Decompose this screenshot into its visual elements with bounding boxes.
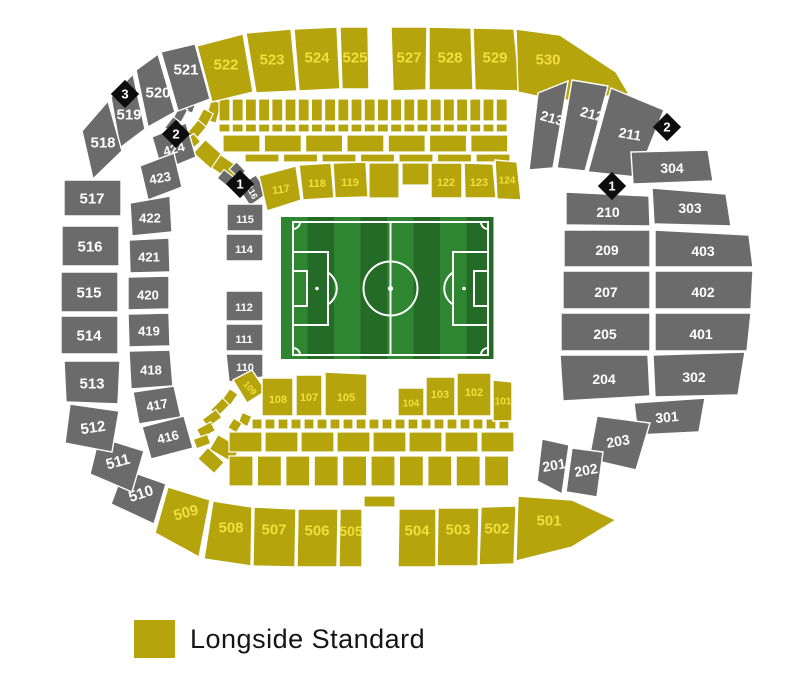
section-label: 520 [145,85,170,102]
gate-marker-label: 2 [172,127,179,142]
section-label: 112 [235,302,253,314]
section-502[interactable]: 502 [479,506,516,565]
section-302: 302 [653,352,745,397]
section-516: 516 [62,226,119,266]
seat-block [430,135,467,152]
stadium-seat-map: 5225235245255275285295305215205195182132… [0,0,797,695]
section-label: 501 [536,513,561,530]
seat-block [245,154,279,162]
section-501[interactable]: 501 [516,496,616,561]
seat-block [301,432,334,452]
seat-block [457,99,468,121]
seat-block [317,419,327,429]
section-label: 527 [396,50,421,67]
section-label: 516 [77,239,102,256]
section-label: 514 [76,328,102,345]
seat-block [232,99,243,121]
gate-marker-label: 3 [121,87,128,102]
section-423: 423 [140,153,182,200]
section-124[interactable]: 124 [495,160,521,200]
seat-block [471,135,508,152]
section-label: 401 [689,326,713,342]
section-102[interactable]: 102 [457,373,491,416]
seat-block [373,432,406,452]
seat-block [364,99,375,121]
section-label: 304 [660,160,684,176]
seat-block [361,154,395,162]
section-119[interactable]: 119 [333,162,368,198]
section-label: 503 [445,522,470,539]
seat-block [388,135,425,152]
section-label: 101 [495,397,512,408]
seat-block [473,419,483,429]
seat-block [409,432,442,452]
seat-block [298,124,309,132]
seat-block [417,99,428,121]
seat-block [265,432,298,452]
section-label: 523 [259,52,284,69]
section-label: 422 [139,211,161,226]
section-506[interactable]: 506 [297,509,338,567]
seat-block [428,456,452,486]
section-label: 529 [482,50,507,67]
section-label: 102 [465,387,483,399]
seat-block [259,99,270,121]
section-529[interactable]: 529 [473,28,520,91]
seat-block [325,124,336,132]
seat-block [337,432,370,452]
seat-block [232,124,243,132]
section-523[interactable]: 523 [246,29,297,93]
seat-block [229,456,253,486]
seat-block [470,99,481,121]
section-112: 112 [226,291,263,321]
section-111: 111 [226,324,263,351]
section-204: 204 [560,355,650,401]
section-505[interactable]: 505 [339,509,363,567]
seat-block [284,154,318,162]
section-114: 114 [226,234,263,261]
section-107[interactable]: 107 [296,375,322,416]
pitch-stripe [361,217,388,359]
section-label: 522 [213,57,238,74]
seat-block [325,99,336,121]
section-label: 421 [138,250,160,265]
seat-block [314,456,338,486]
seat-block [485,456,509,486]
seat-block [306,135,343,152]
seat-block [304,419,314,429]
section-104[interactable]: 104 [398,388,424,416]
section-label: 123 [470,177,488,189]
section-label: 504 [404,523,430,540]
seat-block [291,419,301,429]
section-label: 105 [337,392,355,404]
section-label: 507 [261,522,286,539]
seat-block [483,124,494,132]
section-label: 403 [691,243,715,259]
section-403: 403 [655,230,753,267]
seat-block [369,419,379,429]
seat-block [223,135,260,152]
seat-block [445,432,478,452]
seat-block [447,419,457,429]
section-label: 530 [535,52,560,69]
section-label: 117 [271,183,290,197]
seat-block [443,99,454,121]
penalty-spot-left [315,287,319,291]
section-117[interactable]: 117 [259,166,301,211]
seat-block [259,124,270,132]
section-label: 104 [403,399,420,410]
seat-block [347,135,384,152]
seat-block [391,124,402,132]
seat-block [364,496,395,507]
seat-block [377,99,388,121]
seat-block [245,124,256,132]
gate-marker-label: 2 [663,120,670,135]
seat-block [369,163,399,198]
section-label: 515 [76,285,101,302]
seat-block [343,419,353,429]
section-508[interactable]: 508 [204,501,252,566]
seat-block [391,99,402,121]
section-label: 115 [236,214,254,226]
legend: Longside Standard [134,620,425,658]
section-label: 118 [308,178,326,190]
section-512: 512 [65,404,119,452]
section-label: 204 [592,371,616,387]
section-525[interactable]: 525 [340,27,369,89]
seat-block [377,124,388,132]
seat-block [330,419,340,429]
section-label: 122 [437,177,455,189]
gate-marker-label: 1 [236,177,243,192]
section-201: 201 [537,439,569,494]
section-label: 420 [137,288,159,303]
seat-block [457,124,468,132]
pitch-stripe [467,217,494,359]
pitch-stripe [334,217,361,359]
seat-block [285,124,296,132]
section-202: 202 [566,448,603,497]
seat-block [351,124,362,132]
seat-block [252,419,262,429]
section-527[interactable]: 527 [391,27,427,91]
section-label: 518 [90,135,115,152]
seat-block [298,99,309,121]
seat-block [322,154,356,162]
section-210: 210 [566,192,650,226]
section-123[interactable]: 123 [464,163,496,198]
section-103[interactable]: 103 [426,377,455,416]
section-label: 506 [304,523,329,540]
seat-block [408,419,418,429]
penalty-spot-right [462,287,466,291]
section-label: 210 [596,204,620,220]
section-524[interactable]: 524 [294,27,340,91]
section-419: 419 [128,313,170,347]
section-421: 421 [129,238,170,273]
seat-block [257,456,281,486]
section-517: 517 [64,180,121,216]
section-label: 107 [300,392,318,404]
section-label: 521 [173,62,198,79]
section-422: 422 [130,196,172,236]
section-528[interactable]: 528 [429,27,473,90]
seat-block [460,419,470,429]
section-label: 512 [79,418,106,438]
section-402: 402 [655,271,753,309]
seat-map-svg: 5225235245255275285295305215205195182132… [0,0,797,610]
seat-block [272,124,283,132]
seat-block [219,124,230,132]
section-label: 205 [593,326,617,342]
seat-block [430,124,441,132]
seat-block [351,99,362,121]
seat-block [399,456,423,486]
seat-block [483,99,494,121]
section-label: 517 [79,191,104,208]
section-101[interactable]: 101 [493,380,512,421]
seat-block [421,419,431,429]
seat-block [311,99,322,121]
section-label: 108 [269,394,287,406]
section-label: 524 [304,50,330,67]
section-label: 119 [341,177,359,189]
section-label: 419 [138,324,160,339]
section-label: 528 [437,50,462,67]
legend-label: Longside Standard [190,624,425,655]
section-label: 418 [140,363,162,378]
section-515: 515 [61,272,118,312]
seat-block [311,124,322,132]
section-label: 111 [235,334,252,346]
section-label: 124 [499,176,516,187]
section-label: 402 [691,284,715,300]
seat-block [496,99,507,121]
seat-block [404,124,415,132]
pitch [281,217,494,359]
seat-block [430,99,441,121]
seat-block [399,154,433,162]
seat-block [496,124,507,132]
section-115: 115 [227,204,263,231]
section-514: 514 [61,316,118,354]
seat-block [382,419,392,429]
section-504[interactable]: 504 [398,509,436,567]
seat-block [285,99,296,121]
seat-block [286,456,310,486]
section-207: 207 [563,271,650,309]
seat-block [456,456,480,486]
seat-block [417,124,428,132]
section-label: 303 [678,200,702,216]
section-401: 401 [655,313,751,351]
seat-block [193,434,211,449]
section-label: 508 [218,520,243,537]
section-509[interactable]: 509 [155,487,210,557]
section-304: 304 [631,150,713,184]
section-label: 525 [342,50,367,67]
seat-block [338,124,349,132]
seat-block [343,456,367,486]
seat-block [245,99,256,121]
seat-block [404,99,415,121]
section-108[interactable]: 108 [262,378,293,416]
seat-block [470,124,481,132]
section-label: 103 [431,389,449,401]
seat-block [264,135,301,152]
section-303: 303 [652,188,731,226]
section-label: 207 [594,284,618,300]
seat-block [265,419,275,429]
section-513: 513 [64,361,120,404]
pitch-stripe [281,217,308,359]
section-label: 519 [116,107,141,124]
seat-block [443,124,454,132]
section-420: 420 [128,276,169,310]
section-122[interactable]: 122 [431,163,462,198]
seat-block [356,419,366,429]
section-507[interactable]: 507 [253,507,296,567]
section-label: 114 [235,244,254,256]
seat-block [434,419,444,429]
seat-block [481,432,514,452]
seat-block [278,419,288,429]
section-label: 513 [79,376,104,393]
section-label: 302 [682,369,706,385]
section-label: 301 [655,408,680,426]
seat-block [364,124,375,132]
seat-block [438,154,472,162]
section-503[interactable]: 503 [437,508,479,566]
seat-block [338,99,349,121]
section-418: 418 [129,350,173,389]
section-105[interactable]: 105 [325,372,367,416]
section-shape[interactable] [516,496,616,561]
section-label: 209 [595,242,619,258]
seat-block [219,99,230,121]
section-118[interactable]: 118 [299,163,334,200]
seat-block [229,432,262,452]
section-205: 205 [561,313,650,351]
seat-block [402,163,429,185]
legend-swatch-longside-standard [134,620,175,658]
seat-block [371,456,395,486]
section-209: 209 [564,230,650,267]
section-label: 502 [484,521,509,538]
gate-marker-label: 1 [608,179,615,194]
pitch-stripe [308,217,335,359]
seat-block [272,99,283,121]
section-label: 505 [339,523,363,539]
seat-block [395,419,405,429]
centre-spot [388,286,393,291]
